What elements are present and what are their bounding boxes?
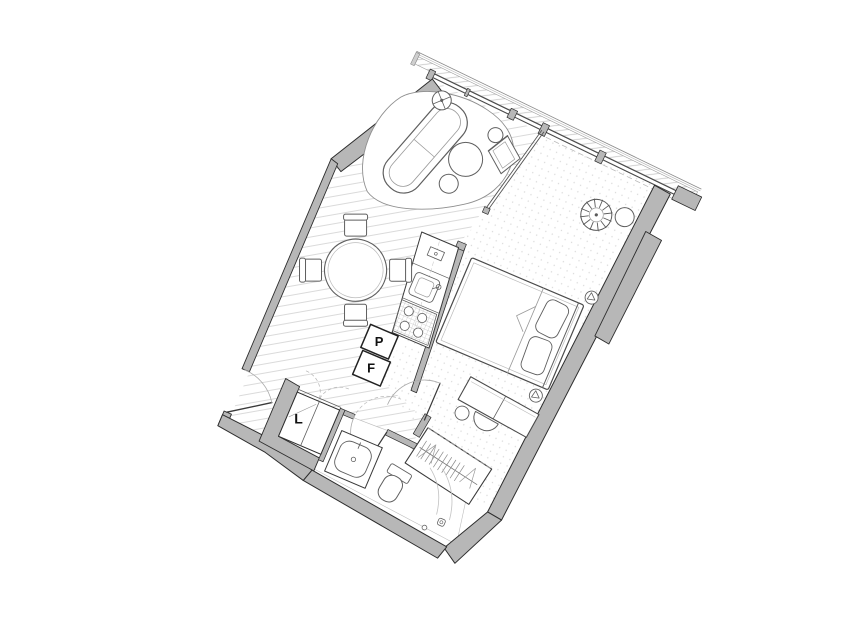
floor-plan-page: L (0, 0, 868, 632)
window-mullion (426, 69, 436, 81)
pantry-label: P (375, 334, 384, 349)
floor-plan-canvas: L (0, 0, 868, 632)
dining-chair (390, 258, 412, 282)
dining-chair (344, 304, 368, 326)
dining-chair (344, 214, 368, 236)
fridge-label: F (367, 361, 375, 376)
dining-chair (300, 258, 322, 282)
linen-label: L (294, 411, 303, 427)
